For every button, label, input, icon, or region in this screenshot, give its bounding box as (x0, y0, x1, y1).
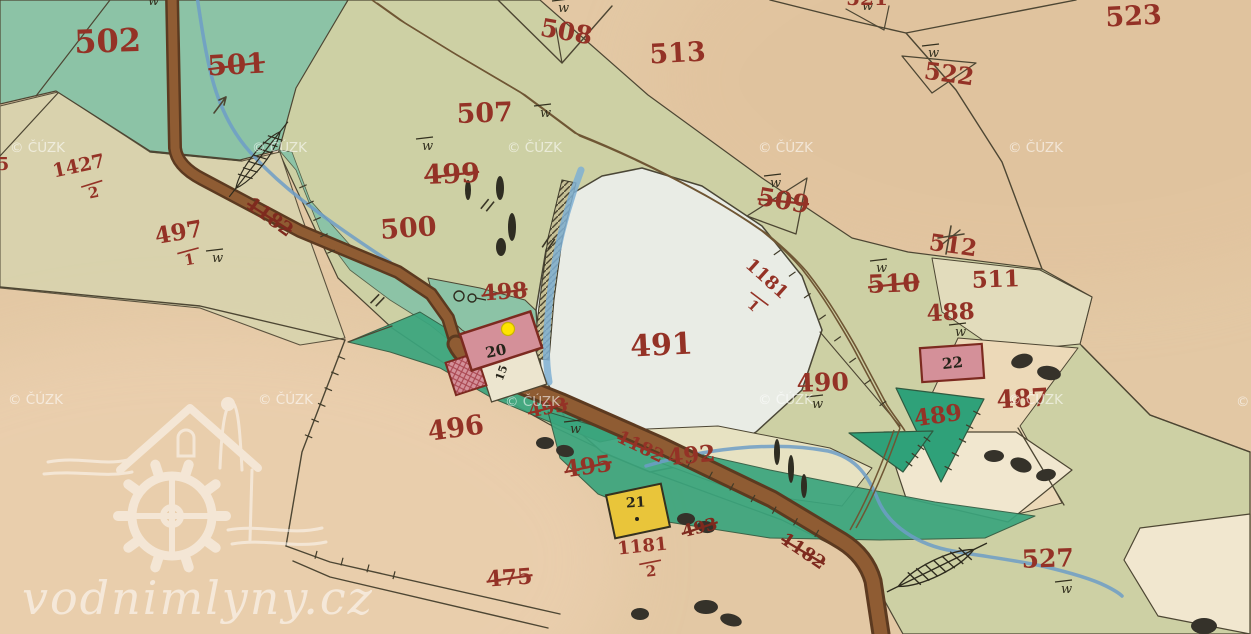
parcel-number: 513 (649, 37, 707, 71)
parcel-label-502: 502 (74, 21, 142, 61)
parcel-number: 502 (74, 21, 142, 61)
meadow-w: w (540, 106, 551, 121)
parcel-label-507: 507 (456, 97, 513, 130)
logo-gear-tooth (186, 465, 189, 474)
logo-gear-tooth (155, 559, 158, 568)
logo-chimney-dot (221, 397, 235, 411)
parcel-number: 507 (456, 97, 513, 130)
meadow-w: w (1061, 582, 1072, 597)
cuzk-watermark: © ČÚZK (10, 138, 66, 156)
parcel-number: 523 (1105, 0, 1163, 33)
parcel-number: 5 (0, 154, 9, 175)
building-21-dot (635, 517, 639, 521)
logo-gear-tooth (128, 542, 135, 547)
parcel-label-501: 501 (206, 47, 266, 83)
fraction-denominator: 2 (645, 562, 657, 581)
cuzk-watermark: © ČÚZK (758, 138, 814, 156)
tree-symbol (774, 439, 780, 465)
rock-symbol (694, 600, 718, 614)
logo-gear-tooth (186, 559, 189, 568)
logo-gear-tooth (155, 465, 158, 474)
rock-symbol (536, 437, 554, 449)
rock-symbol (984, 450, 1004, 462)
tree-symbol (496, 176, 504, 200)
parcel-label-527: 527 (1021, 543, 1074, 574)
parcel-label-513: 513 (649, 37, 707, 71)
cuzk-watermark: © ČÚZK (758, 390, 814, 408)
cuzk-watermark: © ČÚZK (505, 392, 561, 410)
meadow-w: w (955, 325, 966, 340)
building-number-21: 21 (625, 494, 646, 511)
cuzk-watermark: © ČÚZK (1008, 390, 1064, 408)
tree-symbol (496, 238, 506, 256)
parcel-label-511: 511 (971, 265, 1020, 294)
parcel-label-510: 510 (867, 268, 920, 299)
parcel-number: 511 (971, 265, 1020, 294)
meadow-w: w (422, 139, 433, 154)
cuzk-watermark: © ČÚZK (252, 138, 308, 156)
meadow-w: w (570, 422, 581, 437)
parcel-label-498: 498 (481, 277, 529, 306)
tree-symbol (508, 213, 516, 241)
logo-gear-tooth (208, 542, 215, 547)
parcel-label-499: 499 (423, 158, 480, 191)
cuzk-watermark: © ČÚZK (258, 390, 314, 408)
cuzk-watermark: © ČÚZK (1008, 138, 1064, 156)
cuzk-watermark: © ČÚZK (8, 390, 64, 408)
meadow-w: w (558, 1, 569, 16)
mill-location-marker[interactable] (502, 323, 515, 336)
tree-symbol (788, 455, 794, 483)
parcel-number: 491 (629, 326, 693, 364)
meadow-w: w (212, 251, 223, 266)
logo-gear-tooth (128, 484, 135, 489)
logo-wave (48, 460, 128, 462)
map-canvas[interactable]: wwwwwwwwwwwww502501508513523522521550749… (0, 0, 1251, 634)
meadow-w: w (148, 0, 159, 9)
logo-gear-tooth (208, 484, 215, 489)
meadow-w: w (812, 397, 823, 412)
parcel-label-488: 488 (926, 298, 975, 327)
parcel-label-5: 5 (0, 154, 9, 175)
vodnimlyny-watermark-text: vodnimlyny.cz (22, 571, 374, 625)
parcel-label-492: 492 (666, 440, 716, 471)
cuzk-watermark: © ČÚZK (507, 138, 563, 156)
parcel-number: 527 (1021, 543, 1074, 574)
cuzk-watermark: © ČÚZK (1236, 392, 1251, 410)
parcel-number: 488 (926, 298, 975, 327)
parcel-number: 500 (379, 211, 437, 246)
parcel-number: 521 (846, 0, 888, 10)
rock-symbol (631, 608, 649, 620)
parcel-label-521: 521 (846, 0, 888, 10)
rock-symbol (1191, 618, 1217, 634)
parcel-label-491: 491 (629, 326, 693, 364)
cadastral-map[interactable]: wwwwwwwwwwwww502501508513523522521550749… (0, 0, 1251, 634)
parcel-label-475: 475 (486, 563, 534, 592)
building-number-22: 22 (941, 353, 964, 373)
parcel-label-523: 523 (1105, 0, 1163, 33)
tree-symbol (801, 474, 807, 498)
parcel-number: 492 (666, 440, 716, 471)
parcel-label-500: 500 (379, 211, 437, 246)
